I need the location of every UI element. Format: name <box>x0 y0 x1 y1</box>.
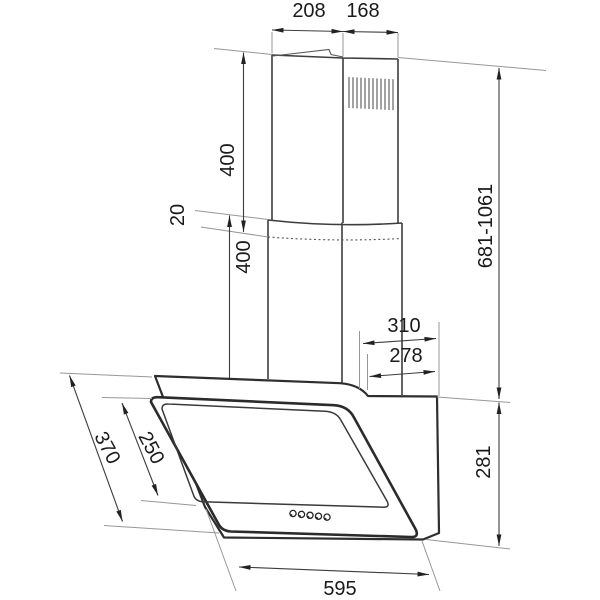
ext-370-top <box>60 373 152 377</box>
chimney <box>268 50 402 399</box>
chimney-lower-face <box>268 220 402 398</box>
label-glass-inner-length: 250 <box>133 428 168 468</box>
ext-281-bottom <box>426 540 510 550</box>
dim-line-168 <box>343 32 398 33</box>
button-knob-icon <box>307 512 313 518</box>
label-hood-width: 595 <box>323 578 356 600</box>
button-knob-icon <box>324 514 330 520</box>
label-chimney-top-width: 208 <box>292 0 325 22</box>
ext-250-bottom <box>141 501 196 506</box>
hood <box>151 376 439 540</box>
chimney-upper-face <box>268 55 398 225</box>
label-front-panel-length: 370 <box>89 428 124 468</box>
ext-370-bottom <box>104 526 219 534</box>
label-flue-overlap: 20 <box>167 204 189 226</box>
button-knob-icon <box>298 511 304 517</box>
technical-drawing-page: 208 168 400 20 400 681-1061 310 278 370 … <box>0 0 600 600</box>
ext-ceiling-right <box>398 58 546 71</box>
label-upper-flue-length: 400 <box>217 143 239 176</box>
label-total-height-range: 681-1061 <box>475 184 497 269</box>
label-body-height: 281 <box>473 445 495 478</box>
cooker-hood-dimension-drawing: 208 168 400 20 400 681-1061 310 278 370 … <box>0 0 600 600</box>
ext-595-right <box>422 541 440 591</box>
ext-overlap-top <box>195 211 268 220</box>
dim-line-595 <box>239 567 429 575</box>
ext-250-top <box>102 398 152 399</box>
label-chimney-top-depth: 168 <box>346 0 379 22</box>
dim-line-208 <box>272 30 343 32</box>
ext-overlap-bottom <box>201 227 268 237</box>
label-lower-flue-length: 400 <box>233 240 255 273</box>
label-top-depth-inner: 278 <box>389 345 422 367</box>
button-knob-icon <box>315 513 321 519</box>
label-top-depth-outer: 310 <box>387 315 420 337</box>
button-knob-icon <box>290 510 296 516</box>
